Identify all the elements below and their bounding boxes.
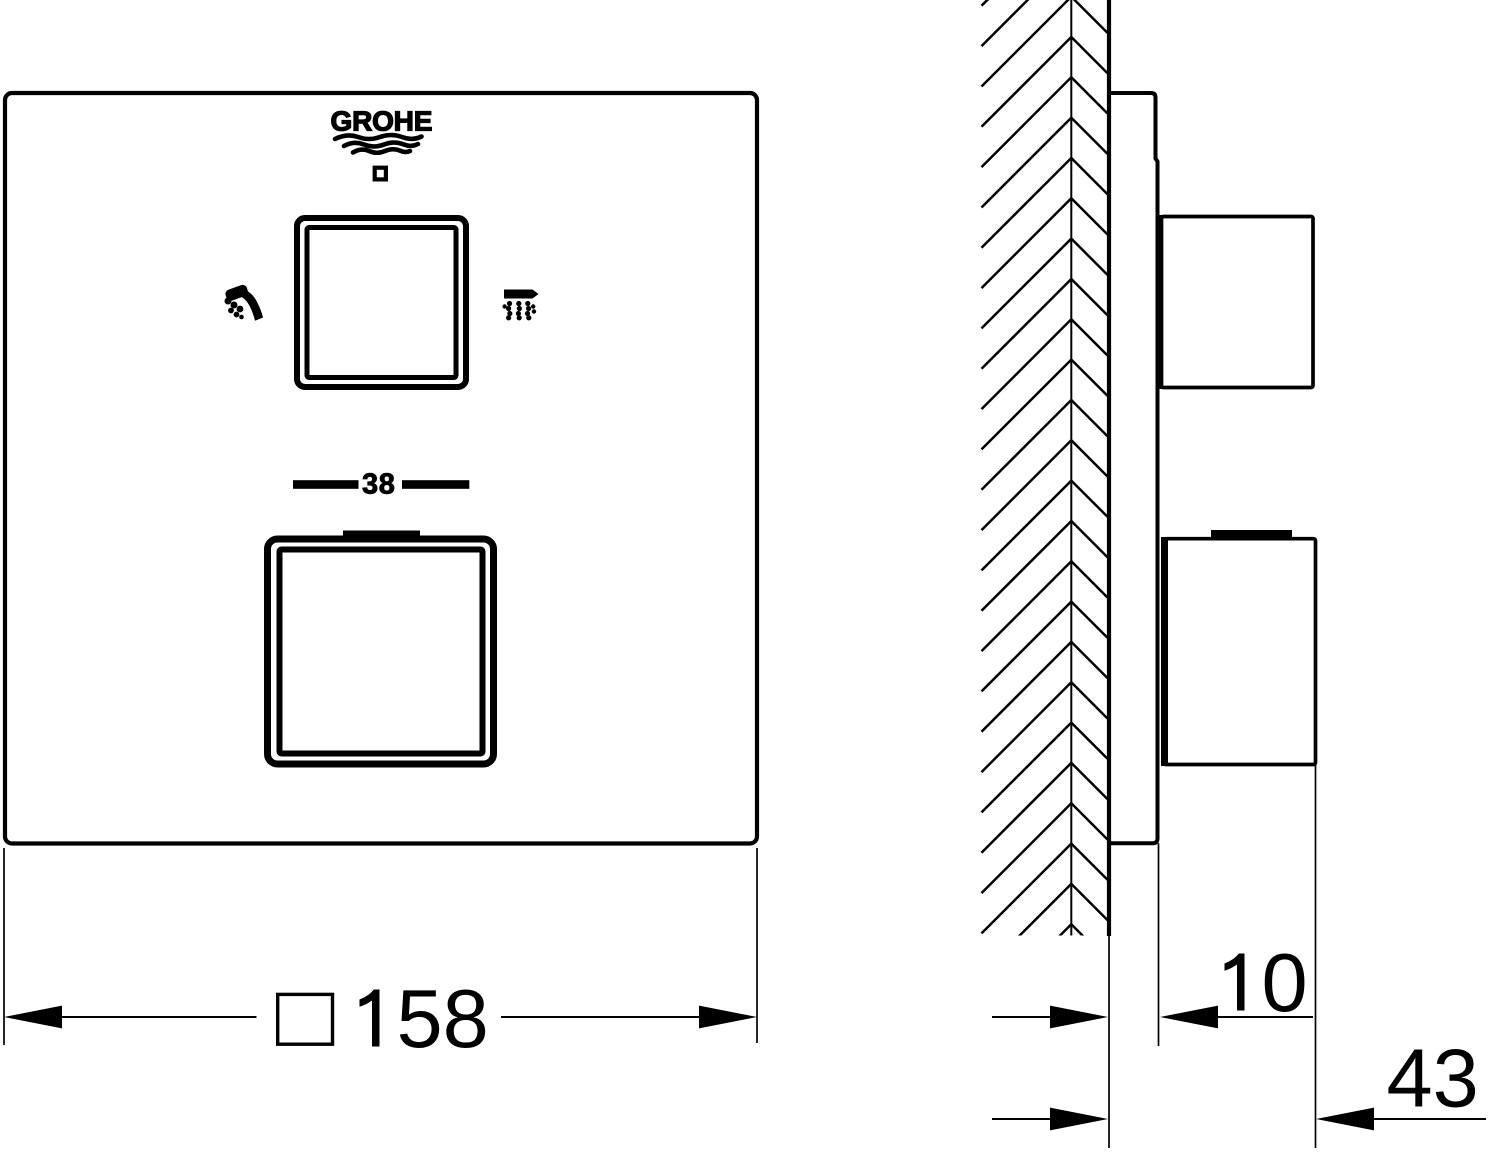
svg-text:0: 0 <box>1262 936 1308 1029</box>
svg-text:43: 43 <box>1387 1032 1479 1125</box>
svg-text:38: 38 <box>362 469 395 501</box>
svg-text:GROHE: GROHE <box>331 106 433 137</box>
svg-text:58: 58 <box>397 972 489 1065</box>
